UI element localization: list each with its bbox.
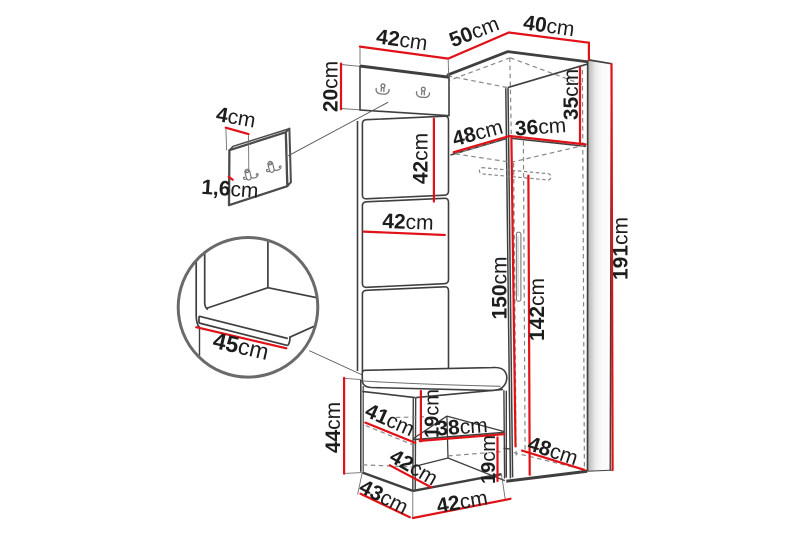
svg-text:42cm: 42cm — [382, 210, 434, 235]
svg-text:150cm: 150cm — [488, 256, 511, 319]
svg-text:42cm: 42cm — [409, 133, 432, 184]
svg-text:142cm: 142cm — [526, 278, 549, 341]
svg-text:19cm: 19cm — [478, 435, 500, 484]
svg-text:35cm: 35cm — [560, 69, 583, 120]
svg-text:1,6cm: 1,6cm — [201, 176, 260, 203]
svg-text:44cm: 44cm — [322, 402, 345, 453]
svg-text:20cm: 20cm — [319, 61, 342, 112]
svg-text:191cm: 191cm — [609, 217, 632, 280]
